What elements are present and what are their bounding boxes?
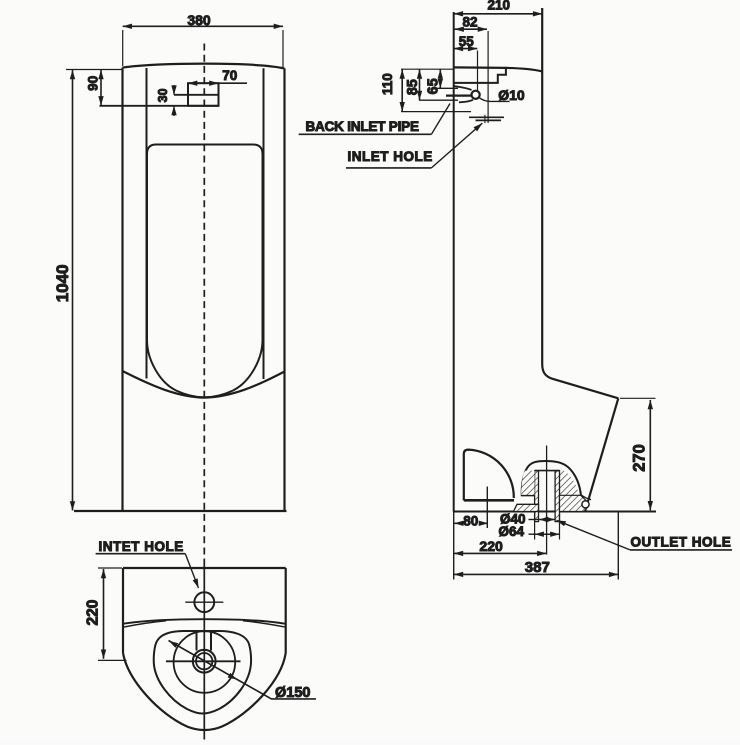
svg-text:Ø10: Ø10 [498,87,525,103]
svg-text:BACK INLET PIPE: BACK INLET PIPE [306,119,419,134]
svg-text:90: 90 [86,76,101,91]
svg-text:85: 85 [405,79,421,95]
svg-text:270: 270 [631,444,649,472]
svg-text:INTET HOLE: INTET HOLE [99,539,184,554]
svg-text:220: 220 [479,538,503,554]
svg-text:55: 55 [459,34,475,49]
svg-text:65: 65 [425,78,441,94]
svg-text:82: 82 [462,15,477,30]
svg-text:80: 80 [463,514,478,529]
svg-text:380: 380 [187,12,211,28]
svg-text:30: 30 [156,88,170,102]
svg-text:210: 210 [488,0,511,13]
svg-text:220: 220 [84,600,101,626]
svg-text:1040: 1040 [53,264,72,302]
svg-text:110: 110 [380,73,395,95]
svg-text:INLET HOLE: INLET HOLE [348,149,433,164]
svg-text:OUTLET HOLE: OUTLET HOLE [631,535,732,550]
svg-text:387: 387 [525,559,550,576]
svg-text:Ø150: Ø150 [275,685,310,701]
svg-text:70: 70 [222,68,237,83]
